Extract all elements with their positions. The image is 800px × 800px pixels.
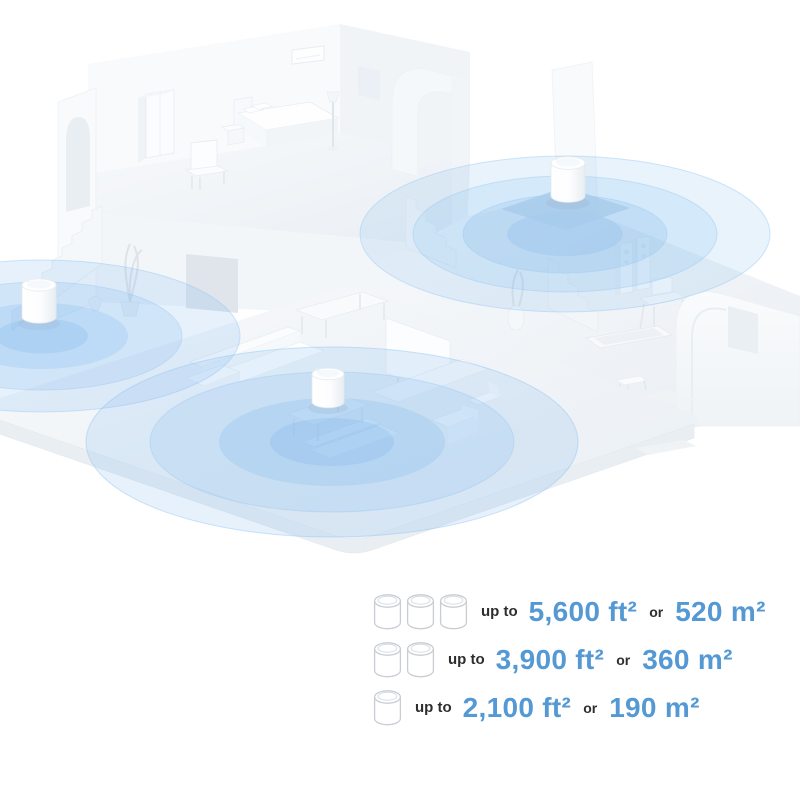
coverage-spec-row-3-units: up to 5,600 ft² or 520 m² xyxy=(373,590,766,633)
deco-router-icon xyxy=(439,592,468,632)
page: up to 5,600 ft² or 520 m² up to 3,900 ft… xyxy=(0,0,800,800)
deco-router-icon xyxy=(373,688,402,728)
wardrobe xyxy=(138,90,174,163)
deco-router-1 xyxy=(546,157,590,210)
deco-router-icon xyxy=(373,640,402,680)
deco-unit-icons xyxy=(373,688,402,728)
deco-router-icon xyxy=(406,592,435,632)
deco-router-2 xyxy=(18,279,60,330)
area-metric-value: 360 m² xyxy=(642,644,733,676)
coverage-spec-row-2-units: up to 3,900 ft² or 360 m² xyxy=(373,638,766,681)
area-metric-value: 190 m² xyxy=(609,692,700,724)
up-to-label: up to xyxy=(448,651,485,668)
or-label: or xyxy=(616,652,630,668)
deco-router-icon xyxy=(406,640,435,680)
deco-router-icon xyxy=(373,592,402,632)
coverage-specs: up to 5,600 ft² or 520 m² up to 3,900 ft… xyxy=(373,590,766,734)
coverage-spec-row-1-unit: up to 2,100 ft² or 190 m² xyxy=(373,686,766,729)
right-arch-wall-lower xyxy=(676,292,800,426)
deco-router-3 xyxy=(308,368,348,414)
area-imperial-value: 3,900 ft² xyxy=(496,644,605,676)
up-to-label: up to xyxy=(415,699,452,716)
up-to-label: up to xyxy=(481,603,518,620)
area-metric-value: 520 m² xyxy=(675,596,766,628)
deco-unit-icons xyxy=(373,592,468,632)
deco-unit-icons xyxy=(373,640,435,680)
bedroom-window xyxy=(358,66,380,100)
or-label: or xyxy=(583,700,597,716)
or-label: or xyxy=(649,604,663,620)
area-imperial-value: 5,600 ft² xyxy=(529,596,638,628)
house-illustration xyxy=(0,0,800,575)
area-imperial-value: 2,100 ft² xyxy=(463,692,572,724)
